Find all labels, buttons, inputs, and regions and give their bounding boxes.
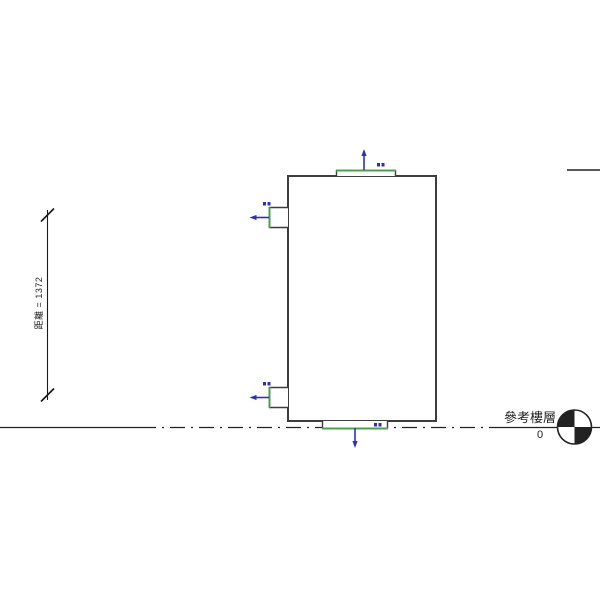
connector-left-upper-tag-icon (268, 202, 271, 206)
connector-top-tag-icon (382, 163, 385, 167)
level-symbol-icon[interactable] (558, 410, 592, 444)
connector-top-tag-icon (377, 163, 380, 167)
connector-bottom-tag-icon (374, 423, 377, 427)
level-elevation-label[interactable]: 0 (532, 429, 548, 441)
connector-left-upper[interactable] (250, 202, 289, 228)
flow-arrow-left-head-icon (250, 215, 257, 220)
drawing-canvas: 距離 = 1372 參考樓層 0 (0, 0, 600, 600)
dimension-label[interactable]: 距離 = 1372 (32, 257, 44, 349)
connector-bottom-fill (322, 421, 388, 429)
level-name-label[interactable]: 參考樓層 (502, 411, 556, 425)
extrusion-body[interactable] (288, 176, 436, 421)
connector-left-lower-fill (269, 387, 288, 408)
flow-arrow-down-head-icon (352, 441, 357, 448)
connector-left-upper-fill (269, 207, 288, 228)
connector-bottom[interactable] (322, 421, 388, 448)
connector-left-lower-tag-icon (268, 382, 271, 386)
connector-left-lower[interactable] (250, 382, 289, 408)
flow-arrow-up-head-icon (361, 149, 366, 156)
connector-bottom-tag-icon (379, 423, 382, 427)
flow-arrow-left-head-icon (250, 395, 257, 400)
connector-left-upper-tag-icon (263, 202, 266, 206)
connector-top[interactable] (336, 149, 396, 176)
connector-left-lower-tag-icon (263, 382, 266, 386)
